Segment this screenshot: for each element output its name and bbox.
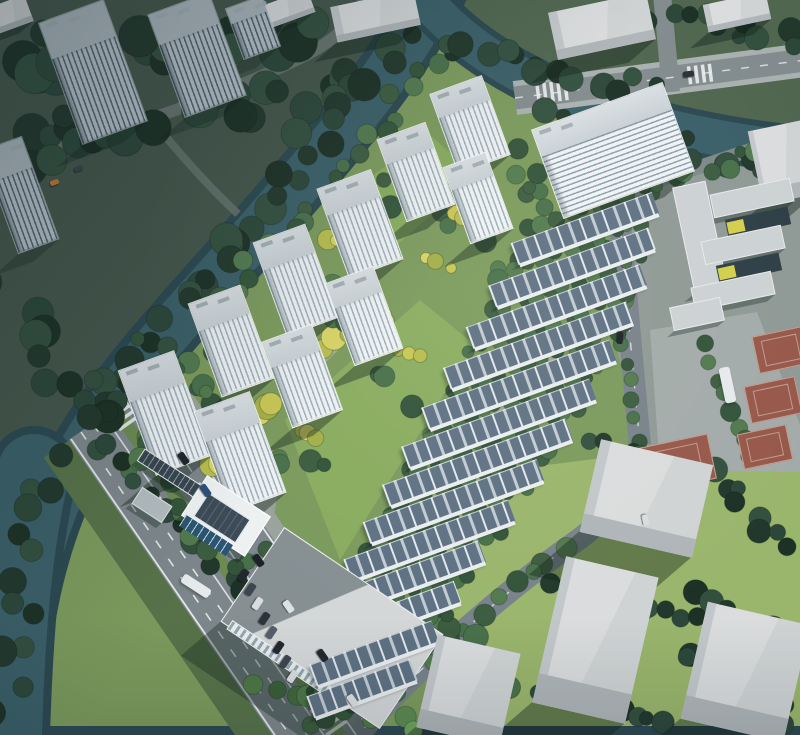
sport-court xyxy=(752,326,800,374)
context-tower xyxy=(0,136,59,254)
tower-facade xyxy=(0,168,58,253)
massing-block xyxy=(0,0,34,33)
massing-block xyxy=(548,0,656,60)
context-tower xyxy=(38,0,148,145)
residential-tower xyxy=(442,152,513,245)
residential-slab-building xyxy=(531,81,695,218)
utility-building xyxy=(131,487,172,523)
car xyxy=(682,70,694,77)
massing-block xyxy=(532,556,658,724)
residential-tower xyxy=(261,324,343,429)
block-front-face xyxy=(556,30,656,60)
aerial-render: Aerial architectural rendering of a resi… xyxy=(0,0,800,735)
white-canopy xyxy=(180,573,212,599)
block-front-face xyxy=(707,14,771,33)
car xyxy=(616,332,623,344)
residential-tower xyxy=(316,169,403,279)
residential-tower xyxy=(253,223,340,336)
car xyxy=(73,164,83,172)
buildings-layer xyxy=(0,0,800,735)
block-front-face xyxy=(680,695,788,735)
car xyxy=(251,553,264,568)
massing-block xyxy=(680,602,800,735)
massing-block xyxy=(330,0,421,42)
massing-block xyxy=(703,0,771,32)
car xyxy=(49,178,59,186)
block-front-face xyxy=(336,18,421,43)
block-front-face xyxy=(532,673,631,724)
sport-court xyxy=(737,424,793,470)
block-front-face xyxy=(416,708,503,735)
white-canopy xyxy=(718,366,736,404)
block-front-face xyxy=(0,16,34,34)
school-building xyxy=(669,297,725,331)
sport-court xyxy=(744,376,800,424)
residential-tower xyxy=(325,266,404,366)
block-front-face xyxy=(579,513,695,557)
